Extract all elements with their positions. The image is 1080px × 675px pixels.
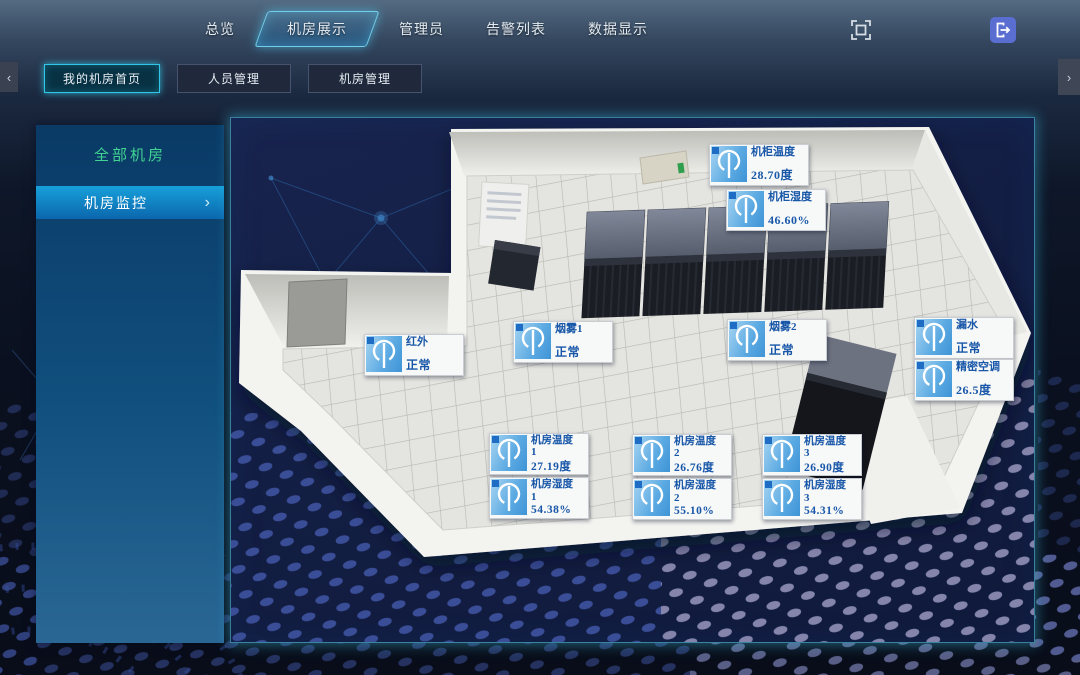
nav-item-data-display[interactable]: 数据显示 [588, 19, 648, 39]
nav-item-overview[interactable]: 总览 [205, 19, 235, 39]
corner-marker [765, 437, 772, 444]
corner-marker [765, 481, 772, 488]
sensor-tag-room-temp-2[interactable]: 机房温度 2 26.76度 [632, 434, 732, 476]
corner-marker [516, 324, 523, 331]
tab-bar: ‹ 我的机房首页 人员管理 机房管理 › [0, 58, 1080, 98]
sensor-value: 55.10% [674, 505, 729, 517]
sensor-value: 正常 [555, 343, 610, 360]
sensor-tag-infrared[interactable]: 红外 正常 [364, 334, 464, 376]
sensor-tag-water-leak[interactable]: 漏水 正常 [914, 317, 1014, 359]
sensor-tag-cabinet-humidity[interactable]: 机柜湿度 46.60% [726, 189, 826, 231]
sensor-value: 27.19度 [531, 458, 586, 474]
sensor-name: 精密空调 [956, 362, 1011, 373]
corner-marker [492, 480, 499, 487]
sensor-value: 54.38% [531, 504, 586, 516]
sidebar-item-room-monitoring[interactable]: 机房监控 › [36, 186, 224, 219]
sensor-name: 机房温度 [674, 437, 729, 448]
sensor-tags-layer: 机柜温度 28.70度 机柜湿度 46.60% 红外 [231, 118, 1034, 642]
sensor-tag-smoke-2[interactable]: 烟雾2 正常 [727, 319, 827, 361]
sensor-value: 26.5度 [956, 381, 1011, 398]
sensor-value: 28.70度 [751, 166, 806, 183]
sensor-index: 2 [674, 448, 729, 459]
nav-item-alarm-list[interactable]: 告警列表 [486, 19, 546, 39]
sensor-index: 3 [804, 493, 859, 504]
sensor-value: 46.60% [768, 213, 823, 228]
sensor-name: 机房湿度 [531, 480, 586, 491]
corner-marker [917, 320, 924, 327]
nav-item-room-display[interactable]: 机房展示 [277, 19, 357, 39]
sensor-tag-room-humidity-2[interactable]: 机房湿度 2 55.10% [632, 478, 732, 520]
corner-marker [729, 192, 736, 199]
sidebar: 全部机房 机房监控 › [36, 125, 224, 643]
logout-icon[interactable] [990, 17, 1016, 43]
sensor-name: 漏水 [956, 320, 1011, 331]
room-3d-panel: 机柜温度 28.70度 机柜湿度 46.60% 红外 [230, 117, 1035, 643]
sensor-name: 机房湿度 [674, 481, 729, 492]
sensor-name: 烟雾1 [555, 324, 610, 335]
sensor-value: 正常 [406, 356, 461, 373]
sensor-name: 机柜湿度 [768, 192, 823, 203]
sensor-tag-smoke-1[interactable]: 烟雾1 正常 [513, 321, 613, 363]
sensor-value: 正常 [956, 339, 1011, 356]
corner-marker [917, 362, 924, 369]
sensor-name: 机柜温度 [751, 147, 806, 158]
sensor-tag-cabinet-temp[interactable]: 机柜温度 28.70度 [709, 144, 809, 186]
tab-personnel-mgmt[interactable]: 人员管理 [177, 64, 291, 93]
sensor-value: 正常 [769, 341, 824, 358]
sensor-value: 26.76度 [674, 459, 729, 475]
sensor-index: 1 [531, 447, 586, 458]
sensor-value: 54.31% [804, 505, 859, 517]
sensor-index: 2 [674, 493, 729, 504]
scroll-left-arrow[interactable]: ‹ [0, 62, 18, 92]
sensor-tag-room-humidity-1[interactable]: 机房湿度 1 54.38% [489, 477, 589, 519]
sensor-tag-precision-ac[interactable]: 精密空调 26.5度 [914, 359, 1014, 401]
corner-marker [635, 437, 642, 444]
corner-marker [367, 337, 374, 344]
sensor-name: 烟雾2 [769, 322, 824, 333]
corner-marker [730, 322, 737, 329]
sensor-tag-room-temp-3[interactable]: 机房温度 3 26.90度 [762, 434, 862, 476]
tab-my-room-home[interactable]: 我的机房首页 [44, 64, 160, 93]
sensor-name: 红外 [406, 337, 461, 348]
sensor-value: 26.90度 [804, 459, 859, 475]
top-navbar: 总览 机房展示 管理员 告警列表 数据显示 [0, 0, 1080, 58]
sensor-name: 机房温度 [531, 436, 586, 447]
nav-item-admin[interactable]: 管理员 [399, 19, 444, 39]
chevron-right-icon: › [205, 194, 210, 212]
corner-marker [635, 481, 642, 488]
sensor-index: 3 [804, 448, 859, 459]
sensor-name: 机房湿度 [804, 481, 859, 492]
sidebar-item-label: 机房监控 [84, 193, 148, 213]
sensor-index: 1 [531, 492, 586, 503]
corner-marker [712, 147, 719, 154]
sensor-name: 机房温度 [804, 437, 859, 448]
sidebar-title: 全部机房 [36, 125, 224, 165]
sensor-tag-room-humidity-3[interactable]: 机房湿度 3 54.31% [762, 478, 862, 520]
corner-marker [492, 436, 499, 443]
fullscreen-icon[interactable] [850, 19, 872, 41]
scroll-right-arrow[interactable]: › [1058, 59, 1080, 95]
sensor-tag-room-temp-1[interactable]: 机房温度 1 27.19度 [489, 433, 589, 475]
tab-room-mgmt[interactable]: 机房管理 [308, 64, 422, 93]
